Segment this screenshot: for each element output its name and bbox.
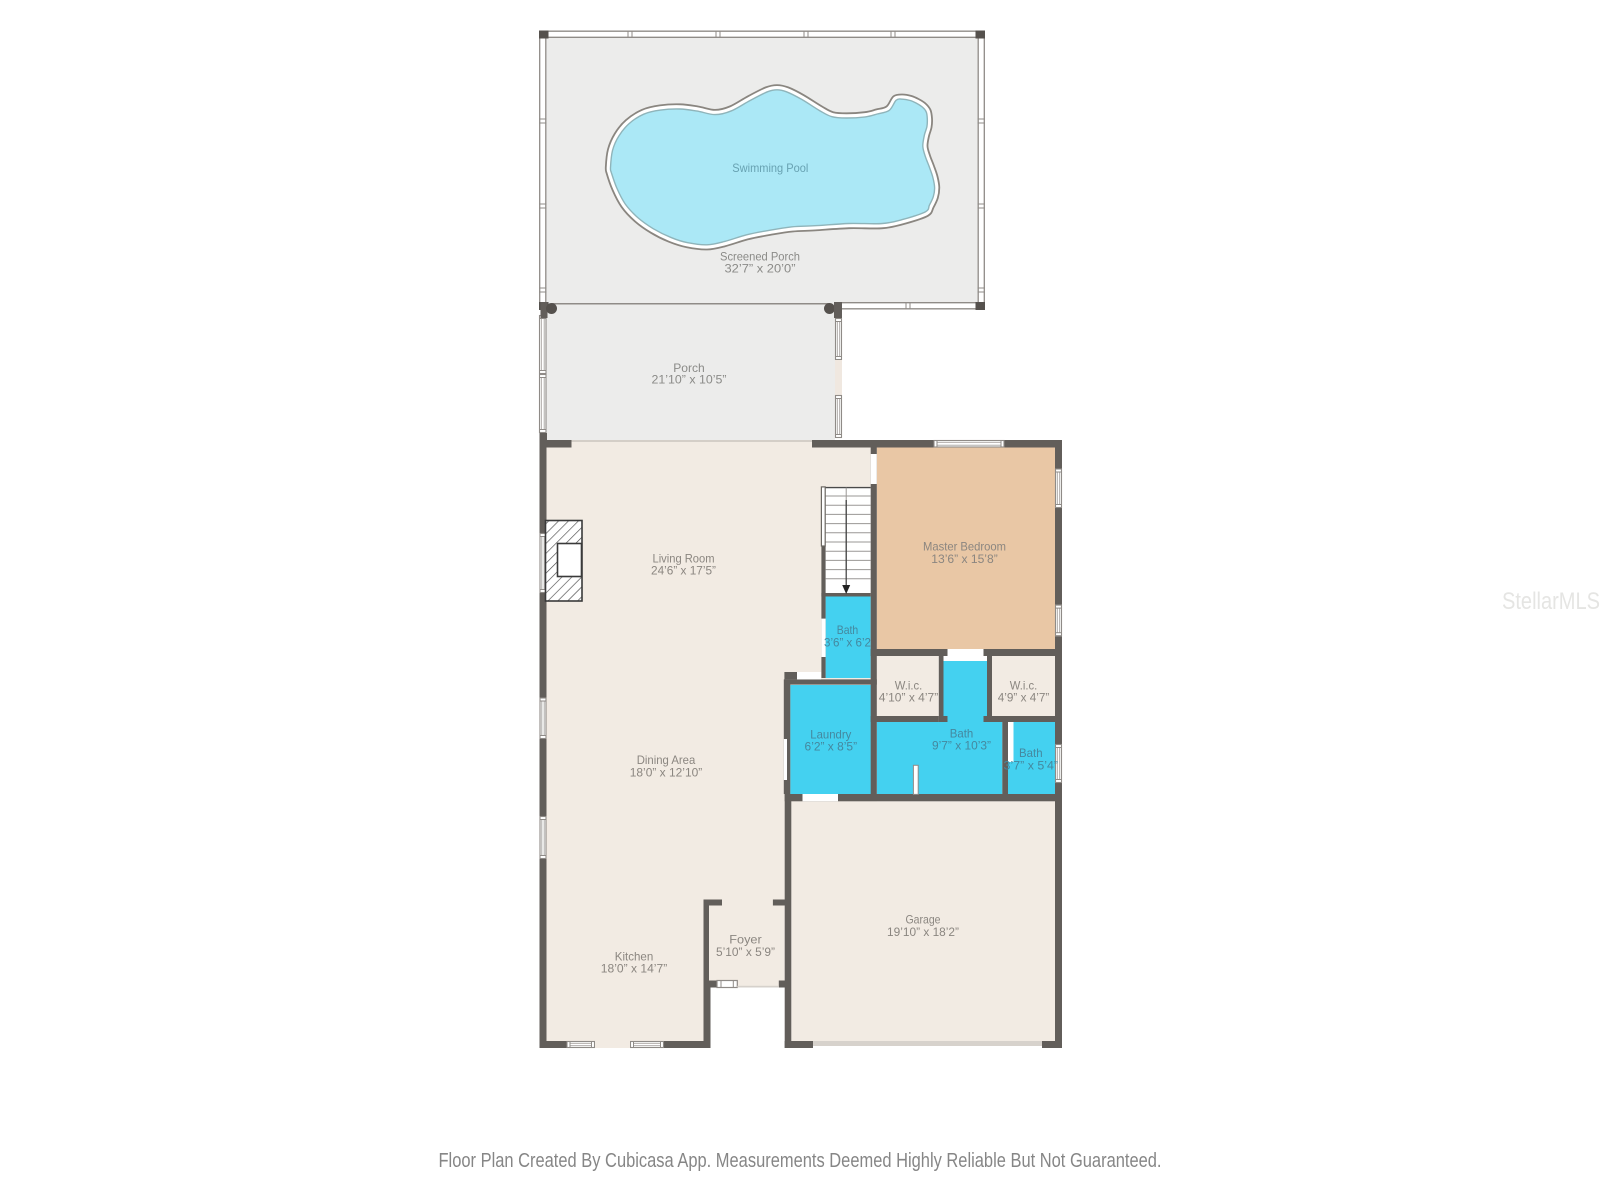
svg-text:Swimming Pool: Swimming Pool xyxy=(732,161,808,175)
svg-text:21’10” x 10’5”: 21’10” x 10’5” xyxy=(652,373,727,387)
svg-text:Floor Plan Created By Cubicasa: Floor Plan Created By Cubicasa App. Meas… xyxy=(439,1150,1162,1172)
svg-text:StellarMLS: StellarMLS xyxy=(1502,588,1600,615)
svg-text:3’7” x 5’4”: 3’7” x 5’4” xyxy=(1004,758,1059,772)
svg-text:19’10” x 18’2”: 19’10” x 18’2” xyxy=(887,925,959,939)
svg-text:4’9” x 4’7”: 4’9” x 4’7” xyxy=(998,691,1050,705)
svg-text:6’2” x 8’5”: 6’2” x 8’5” xyxy=(805,740,858,754)
svg-text:18’0” x 14’7”: 18’0” x 14’7” xyxy=(601,962,668,976)
svg-text:4’10” x 4’7”: 4’10” x 4’7” xyxy=(879,691,939,705)
svg-text:32’7” x 20’0”: 32’7” x 20’0” xyxy=(725,261,796,275)
svg-text:9’7” x 10’3”: 9’7” x 10’3” xyxy=(932,739,991,753)
svg-text:18’0” x 12’10”: 18’0” x 12’10” xyxy=(630,765,703,779)
svg-text:3’6” x 6’2: 3’6” x 6’2 xyxy=(824,635,871,649)
svg-text:5’10” x 5’9”: 5’10” x 5’9” xyxy=(716,945,775,959)
svg-text:13’6” x 15’8”: 13’6” x 15’8” xyxy=(931,552,998,566)
svg-text:24’6” x 17’5”: 24’6” x 17’5” xyxy=(651,564,716,578)
